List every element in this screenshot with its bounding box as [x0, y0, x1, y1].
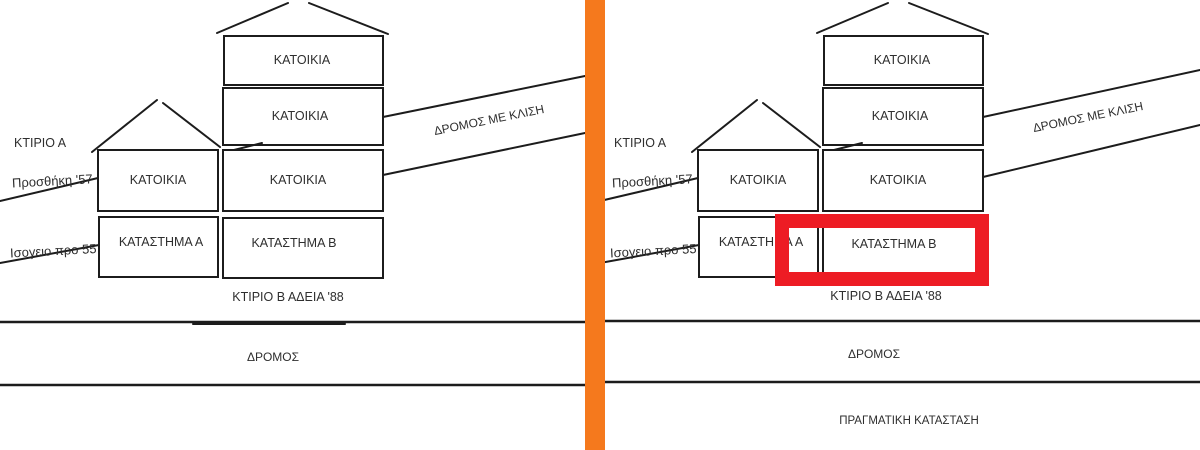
shop-b-label: ΚΑΤΑΣΤΗΜΑ Β	[851, 237, 936, 251]
shop-a-label: ΚΑΤΑΣΤΗΜΑ Α	[719, 235, 804, 249]
building-a-roof-right	[763, 103, 820, 147]
building-a-roof-left	[92, 100, 157, 152]
sloped-road-lower-line	[383, 133, 585, 175]
shop-b-label: ΚΑΤΑΣΤΗΜΑ Β	[251, 236, 336, 250]
shop-a-label: ΚΑΤΑΣΤΗΜΑ Α	[119, 235, 204, 249]
ground-floor-pre55-label: Ισογειο προ 55	[10, 241, 97, 261]
sloped-road-lower-line	[983, 125, 1200, 177]
addition-57-label: Προσθήκη '57	[12, 171, 93, 190]
residence-label-b2: ΚΑΤΟΙΚΙΑ	[272, 109, 329, 123]
sloped-road-upper-line	[383, 76, 585, 117]
diagram-canvas: ΚΤΙΡΙΟ Α Προσθήκη '57 Ισογειο προ 55 ΚΑΤ…	[0, 0, 1200, 450]
building-b-roof-left	[217, 3, 288, 33]
residence-label-a: ΚΑΤΟΙΚΙΑ	[130, 173, 187, 187]
comparison-diagram: ΚΤΙΡΙΟ Α Προσθήκη '57 Ισογειο προ 55 ΚΑΤ…	[0, 0, 1200, 450]
addition-57-label: Προσθήκη '57	[612, 171, 693, 190]
building-b-permit-label: ΚΤΙΡΙΟ Β ΑΔΕΙΑ '88	[830, 289, 942, 303]
building-a-roof-right	[163, 103, 220, 147]
building-b-permit-label: ΚΤΙΡΙΟ Β ΑΔΕΙΑ '88	[232, 290, 344, 304]
residence-label-b2: ΚΑΤΟΙΚΙΑ	[872, 109, 929, 123]
building-b-roof-right	[909, 3, 988, 34]
residence-label-b3: ΚΑΤΟΙΚΙΑ	[274, 53, 331, 67]
sloped-road-label: ΔΡΟΜΟΣ ΜΕ ΚΛΙΣΗ	[1032, 99, 1145, 135]
building-a-title: ΚΤΙΡΙΟ Α	[614, 136, 667, 150]
actual-state-caption: ΠΡΑΓΜΑΤΙΚΗ ΚΑΤΑΣΤΑΣΗ	[839, 415, 979, 427]
ground-floor-pre55-label: Ισογειο προ 55	[610, 241, 697, 261]
residence-label-b1: ΚΑΤΟΙΚΙΑ	[270, 173, 327, 187]
residence-label-b3: ΚΑΤΟΙΚΙΑ	[874, 53, 931, 67]
orange-divider-bar	[585, 0, 605, 450]
residence-label-a: ΚΑΤΟΙΚΙΑ	[730, 173, 787, 187]
right-panel: ΚΤΙΡΙΟ Α Προσθήκη '57 Ισογειο προ 55 ΚΑΤ…	[600, 3, 1200, 427]
residence-label-b1: ΚΑΤΟΙΚΙΑ	[870, 173, 927, 187]
sloped-road-label: ΔΡΟΜΟΣ ΜΕ ΚΛΙΣΗ	[433, 102, 546, 138]
street-label: ΔΡΟΜΟΣ	[848, 347, 900, 361]
building-a-roof-left	[692, 100, 757, 152]
building-b-roof-right	[309, 3, 388, 34]
building-a-title: ΚΤΙΡΙΟ Α	[14, 136, 67, 150]
street-label: ΔΡΟΜΟΣ	[247, 350, 299, 364]
building-b-roof-left	[817, 3, 888, 33]
left-panel: ΚΤΙΡΙΟ Α Προσθήκη '57 Ισογειο προ 55 ΚΑΤ…	[0, 3, 585, 385]
